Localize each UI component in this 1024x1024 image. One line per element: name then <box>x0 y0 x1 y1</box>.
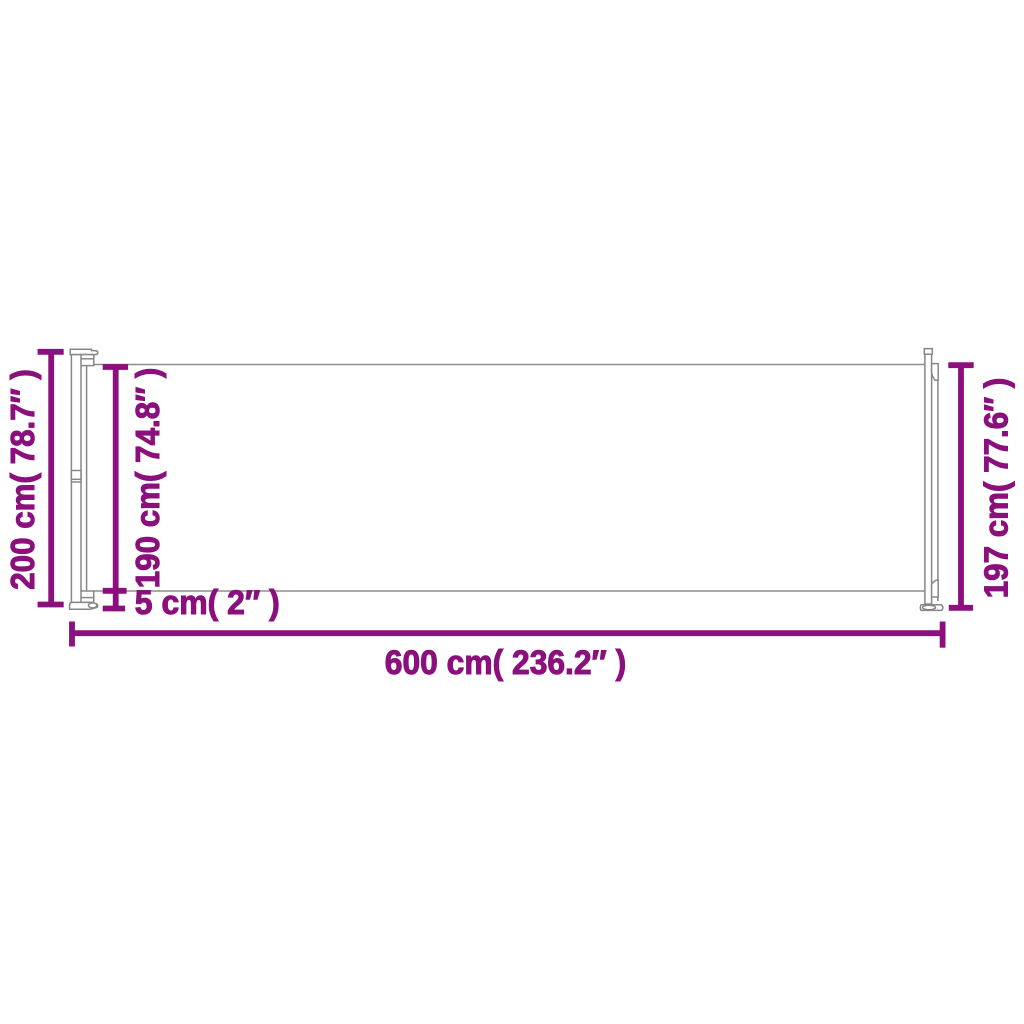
svg-text:600 cm( 236.2″ ): 600 cm( 236.2″ ) <box>385 643 626 681</box>
svg-text:197 cm( 77.6″ ): 197 cm( 77.6″ ) <box>978 378 1015 599</box>
svg-text:190 cm( 74.8″ ): 190 cm( 74.8″ ) <box>129 368 166 589</box>
svg-text:200 cm( 78.7″ ): 200 cm( 78.7″ ) <box>4 369 41 590</box>
svg-text:5 cm( 2″ ): 5 cm( 2″ ) <box>135 583 280 621</box>
